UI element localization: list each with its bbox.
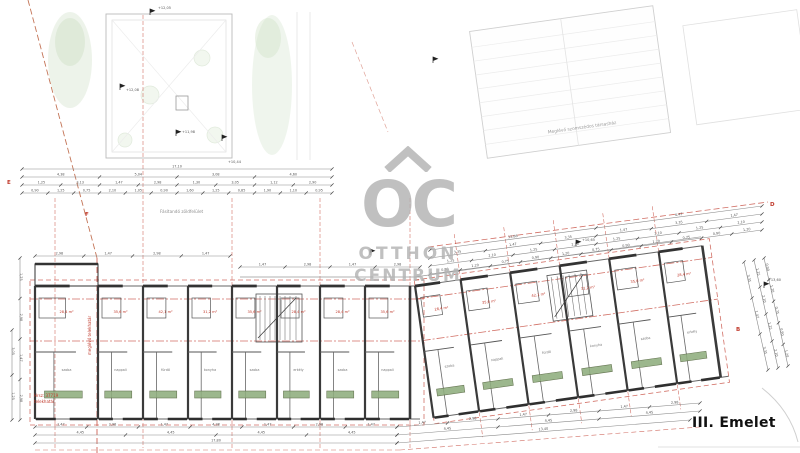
- dim-label: 2,10: [109, 189, 117, 193]
- elevation-flag-icon: [764, 282, 769, 288]
- dim-label: 2,98: [109, 423, 117, 427]
- dim-label: 1,47: [367, 423, 375, 427]
- balcony-slab: [327, 391, 354, 398]
- balcony-slab: [195, 391, 221, 398]
- tree-symbol: [141, 86, 159, 104]
- dim-label: 13,40: [538, 427, 548, 432]
- elevation-flag-icon: [120, 84, 125, 90]
- elevation-label: +10,65: [582, 238, 595, 242]
- dim-label: 0,90: [779, 328, 785, 336]
- dim-label: 2,98: [153, 252, 161, 256]
- dim-label: 2,98: [394, 263, 402, 267]
- dim-label: 1,47: [620, 404, 628, 409]
- balcony-slab: [283, 391, 309, 398]
- floor-plan-sheet: Fásítandó zöldfelület Meglévő szomszédos…: [0, 0, 800, 453]
- hedge-shape: [55, 18, 85, 66]
- dim-label: 3,35: [746, 274, 752, 282]
- dimension-chain: 2,981,472,981,47: [33, 252, 231, 258]
- dim-label: 3,13: [76, 181, 84, 185]
- unit-area-label: 31,2 m²: [203, 310, 218, 314]
- bathroom-walls: [324, 298, 343, 318]
- tree-symbol: [118, 133, 132, 147]
- dimension-chain: 1,252,981,472,98: [18, 256, 23, 421]
- balcony-slab: [105, 391, 132, 398]
- neighbor-building-outline: [470, 6, 671, 159]
- dim-label: 2,10: [761, 295, 767, 303]
- section-marker-b: B: [736, 327, 740, 333]
- elevation-flag-icon: [176, 130, 181, 136]
- dimension-chain: 1,253,131,472,981,303,051,122,90: [20, 181, 333, 187]
- building-left-wing: 28,4 m²szoba35,6 m²nappali42,1 m²fürdő31…: [35, 264, 420, 419]
- dim-label: 1,20: [784, 349, 790, 357]
- balcony-slab: [631, 358, 662, 369]
- dim-label: 1,47: [104, 252, 112, 256]
- dim-label: 4,45: [167, 431, 175, 435]
- bathroom-walls: [236, 298, 255, 318]
- courtyard-structure: [176, 96, 188, 110]
- dim-label: 2,10: [773, 349, 779, 357]
- dimension-chain: 1,472,981,474,381,472,981,47: [33, 423, 398, 429]
- room-label: szoba: [250, 368, 260, 372]
- dim-label: 3,08: [212, 173, 220, 177]
- unit-area-label: 35,6 m²: [247, 310, 262, 314]
- unit-area-label: 35,6 m²: [113, 310, 128, 314]
- dim-label: 1,25: [19, 273, 23, 281]
- balcony-slab: [239, 391, 266, 398]
- dim-label: 3,05: [231, 181, 239, 185]
- dim-label: 0,85: [238, 189, 246, 193]
- section-marker-e: E: [7, 180, 11, 186]
- dim-label: 1,47: [19, 354, 23, 362]
- section-line-d: [428, 202, 768, 247]
- floor-title: III. Emelet: [692, 415, 776, 431]
- unit-area-label: 28,4 m²: [335, 310, 350, 314]
- dim-label: 2,98: [570, 408, 578, 413]
- dim-label: 1,47: [202, 252, 210, 256]
- spot-elevation-markers: [120, 9, 769, 288]
- balcony-slab: [150, 391, 177, 398]
- building-outline-dashed: [414, 239, 729, 424]
- plan-drawing: Fásítandó zöldfelület Meglévő szomszédos…: [0, 0, 800, 453]
- dim-label: 1,47: [264, 423, 272, 427]
- bathroom-walls: [39, 298, 65, 318]
- dim-label: 4,45: [257, 431, 265, 435]
- dim-label: 2,98: [56, 252, 64, 256]
- balcony-slab: [372, 391, 399, 398]
- dimension-chain: 4,454,454,454,45: [33, 431, 398, 437]
- dim-label: 1,47: [57, 423, 65, 427]
- boundary-diagonal-2: [352, 42, 388, 132]
- dim-label: 1,47: [754, 310, 760, 318]
- dim-label: 0,95: [315, 189, 323, 193]
- dim-label: 2,98: [316, 423, 324, 427]
- bathroom-walls: [102, 298, 121, 318]
- dim-label: 4,45: [443, 426, 451, 431]
- dim-label: 17,80: [211, 439, 221, 443]
- unit-area-label: 28,4 m²: [677, 271, 692, 277]
- room-label: konyha: [590, 343, 603, 349]
- dim-label: 0,75: [774, 306, 780, 314]
- dim-label: 2,98: [304, 263, 312, 267]
- balcony-slab: [532, 371, 563, 382]
- dim-label: 3,35: [762, 346, 768, 354]
- dim-label: 1,47: [519, 412, 527, 417]
- tree-symbol: [194, 50, 210, 66]
- room-label: erkély: [687, 329, 698, 334]
- dim-label: 2,98: [154, 181, 162, 185]
- dim-label: 4,38: [57, 173, 65, 177]
- dim-label: 4,38: [212, 423, 220, 427]
- balcony-slab: [582, 365, 613, 376]
- dim-label: 2,98: [19, 395, 23, 403]
- dim-label: 0,75: [83, 189, 91, 193]
- unit-area-label: 42,1 m²: [158, 310, 173, 314]
- dimension-chain: 4,385,043,084,60: [20, 173, 333, 179]
- dim-label: 1,47: [115, 181, 123, 185]
- elevation-label: +12,05: [158, 6, 171, 10]
- dimension-chain: 3,351,473,35: [742, 260, 769, 371]
- dim-label: 4,60: [289, 173, 297, 177]
- dim-label: 1,12: [270, 181, 278, 185]
- balcony-slab: [680, 351, 707, 362]
- dim-label: 0,90: [31, 189, 39, 193]
- dim-label: 1,47: [418, 420, 426, 425]
- balcony-slab: [483, 378, 514, 389]
- dim-label: 3,05: [11, 347, 15, 355]
- dim-label: 1,47: [349, 263, 357, 267]
- dim-label: 1,47: [161, 423, 169, 427]
- dim-label: 1,25: [38, 181, 46, 185]
- tree-symbol: [207, 127, 223, 143]
- dim-label: 1,60: [186, 189, 194, 193]
- room-label: fürdő: [542, 350, 551, 355]
- dim-label: 5,04: [134, 173, 142, 177]
- plot-number-label: Hrsz: 37719: [34, 393, 59, 398]
- dim-label: 4,45: [544, 418, 552, 423]
- plot-sub-label: telekhatár: [34, 399, 55, 404]
- section-marker-f: F: [85, 212, 89, 218]
- elevation-flag-icon: [370, 249, 375, 255]
- dimension-chain: 1,472,981,472,98: [238, 263, 421, 269]
- stair-tower-outline: [35, 264, 98, 286]
- dim-label: 17,10: [172, 165, 182, 169]
- dimension-chain: 17,10: [20, 165, 333, 171]
- dim-label: 2,98: [469, 416, 477, 421]
- dim-label: 1,20: [769, 285, 775, 293]
- balcony-slab: [437, 385, 465, 396]
- bathroom-walls: [147, 298, 166, 318]
- elevation-label: +11,98: [182, 130, 195, 134]
- room-label: nappali: [114, 368, 127, 372]
- green-area-label: Fásítandó zöldfelület: [160, 209, 204, 214]
- room-label: nappali: [381, 368, 394, 372]
- dim-label: 1,25: [212, 189, 220, 193]
- room-label: konyha: [204, 368, 216, 372]
- room-label: szoba: [640, 336, 650, 341]
- dim-label: 2,98: [19, 314, 23, 322]
- dim-label: 1,25: [755, 268, 761, 276]
- dim-label: 4,45: [348, 431, 356, 435]
- dimension-chain: 0,901,250,752,101,050,901,601,250,851,90…: [20, 189, 333, 195]
- room-label: erkély: [293, 368, 303, 372]
- hedge-shape: [255, 18, 281, 58]
- dim-label: 2,98: [671, 400, 679, 405]
- room-label: fürdő: [161, 368, 170, 372]
- dim-label: 4,45: [645, 410, 653, 415]
- dim-label: 0,90: [765, 263, 771, 271]
- neighbor-building-2-outline: [683, 10, 800, 125]
- dim-label: 1,47: [259, 263, 267, 267]
- room-label: szoba: [338, 368, 348, 372]
- dim-label: 0,90: [160, 189, 168, 193]
- neighbor-building: Meglévő szomszédos társasház: [470, 0, 800, 158]
- bathroom-walls: [192, 298, 210, 318]
- section-marker-d: D: [770, 202, 775, 208]
- dimension-chain: 4,454,454,45: [395, 409, 701, 436]
- apartment-units: 28,4 m²szoba35,6 m²nappali42,1 m²fürdő31…: [415, 246, 721, 418]
- unit-area-label: 28,4 m²: [59, 310, 74, 314]
- dimension-chain: 3,051,25: [10, 328, 15, 421]
- elevation-flag-icon: [433, 57, 438, 63]
- elevation-label: +12,08: [126, 88, 139, 92]
- elevation-label: +13,60: [768, 278, 781, 282]
- dimension-chain: 12,886,47: [428, 204, 763, 251]
- dim-label: 1,05: [134, 189, 142, 193]
- dim-label: 4,45: [76, 431, 84, 435]
- unit-area-label: 28,4 m²: [291, 310, 306, 314]
- dim-label: 1,25: [57, 189, 65, 193]
- dim-label: 2,90: [309, 181, 317, 185]
- dim-label: 1,25: [767, 322, 773, 330]
- dim-label: 1,10: [289, 189, 297, 193]
- dim-label: 1,25: [11, 392, 15, 400]
- dimension-chains: 17,104,385,043,084,601,253,131,472,981,3…: [10, 165, 789, 445]
- room-label: szoba: [444, 363, 454, 368]
- boundary-line-label: meglévő telekhatár: [87, 316, 92, 355]
- dimension-chain: 17,80: [33, 439, 398, 445]
- dim-label: 1,30: [193, 181, 201, 185]
- unit-area-label: 35,6 m²: [380, 310, 395, 314]
- elevation-label: +10,44: [228, 160, 242, 164]
- bathroom-walls: [369, 298, 388, 318]
- room-label: nappali: [491, 357, 504, 363]
- dim-label: 1,90: [264, 189, 272, 193]
- room-label: szoba: [62, 368, 72, 372]
